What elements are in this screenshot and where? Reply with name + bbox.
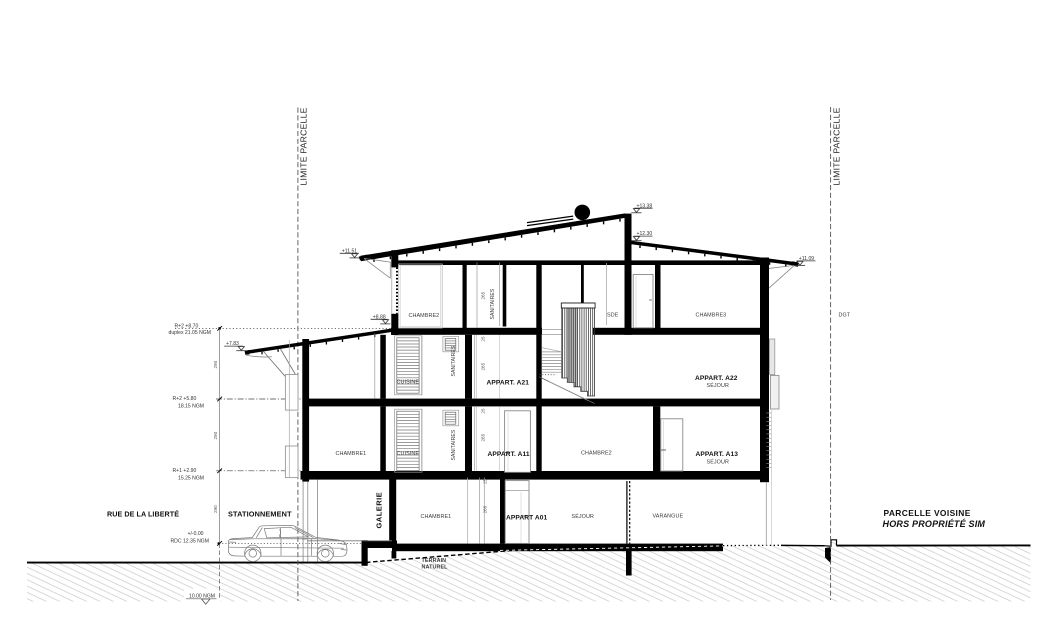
svg-text:290: 290: [213, 505, 218, 513]
svg-text:RDC 12.35 NGM: RDC 12.35 NGM: [171, 539, 210, 545]
svg-text:SÉJOUR: SÉJOUR: [707, 458, 729, 465]
svg-text:HORS PROPRIÉTÉ SIM: HORS PROPRIÉTÉ SIM: [883, 519, 986, 529]
svg-text:RUE DE LA LIBERTÉ: RUE DE LA LIBERTÉ: [107, 509, 179, 518]
svg-text:R+2 +5.80: R+2 +5.80: [173, 396, 197, 402]
svg-text:CUISINE: CUISINE: [397, 451, 420, 457]
svg-text:290: 290: [213, 360, 218, 368]
svg-text:SANITAIRES: SANITAIRES: [451, 345, 457, 376]
svg-text:LIMITE PARCELLE: LIMITE PARCELLE: [299, 107, 309, 185]
svg-text:+/-0.00: +/-0.00: [188, 531, 204, 537]
svg-text:CHAMBRE1: CHAMBRE1: [336, 451, 367, 457]
svg-text:NATUREL: NATUREL: [422, 564, 449, 570]
svg-text:R+2 +8.70: R+2 +8.70: [175, 323, 199, 329]
svg-text:DGT: DGT: [839, 313, 851, 319]
svg-text:CHAMBRE3: CHAMBRE3: [696, 313, 727, 319]
svg-text:SÉJOUR: SÉJOUR: [707, 382, 729, 389]
svg-text:25: 25: [481, 408, 486, 414]
svg-text:STATIONNEMENT: STATIONNEMENT: [228, 509, 292, 518]
svg-text:25: 25: [483, 478, 488, 484]
svg-text:25: 25: [481, 336, 486, 342]
svg-text:265: 265: [483, 505, 488, 513]
svg-text:LIMITE PARCELLE: LIMITE PARCELLE: [832, 107, 842, 185]
svg-text:duplex 21.05 NGM: duplex 21.05 NGM: [169, 330, 211, 336]
svg-text:R+1 +2.90: R+1 +2.90: [173, 468, 197, 474]
svg-text:APPART A01: APPART A01: [506, 514, 548, 521]
svg-text:18.15 NGM: 18.15 NGM: [178, 404, 204, 410]
svg-text:APPART. A21: APPART. A21: [487, 380, 530, 387]
svg-text:265: 265: [481, 433, 486, 441]
svg-text:GALERIE: GALERIE: [375, 492, 384, 529]
svg-text:CHAMBRE2: CHAMBRE2: [409, 313, 440, 319]
svg-text:APPART. A13: APPART. A13: [696, 451, 739, 458]
svg-text:APPART. A22: APPART. A22: [695, 375, 738, 382]
svg-text:265: 265: [481, 362, 486, 370]
svg-text:290: 290: [213, 431, 218, 439]
svg-text:TERRAIN: TERRAIN: [422, 558, 447, 564]
svg-text:APPART. A11: APPART. A11: [488, 451, 530, 458]
svg-text:PARCELLE VOISINE: PARCELLE VOISINE: [884, 508, 971, 518]
svg-text:CUISINE: CUISINE: [397, 380, 420, 386]
svg-text:SDE: SDE: [607, 313, 619, 319]
svg-text:CHAMBRE1: CHAMBRE1: [421, 514, 452, 520]
svg-text:SANITAIRES: SANITAIRES: [490, 288, 496, 319]
svg-text:15.25 NGM: 15.25 NGM: [178, 476, 204, 482]
svg-text:VARANGUE: VARANGUE: [653, 513, 684, 519]
svg-text:265: 265: [481, 291, 486, 299]
svg-text:SÉJOUR: SÉJOUR: [572, 513, 594, 520]
svg-text:CHAMBRE2: CHAMBRE2: [581, 450, 612, 456]
svg-text:SANITAIRES: SANITAIRES: [451, 429, 457, 460]
